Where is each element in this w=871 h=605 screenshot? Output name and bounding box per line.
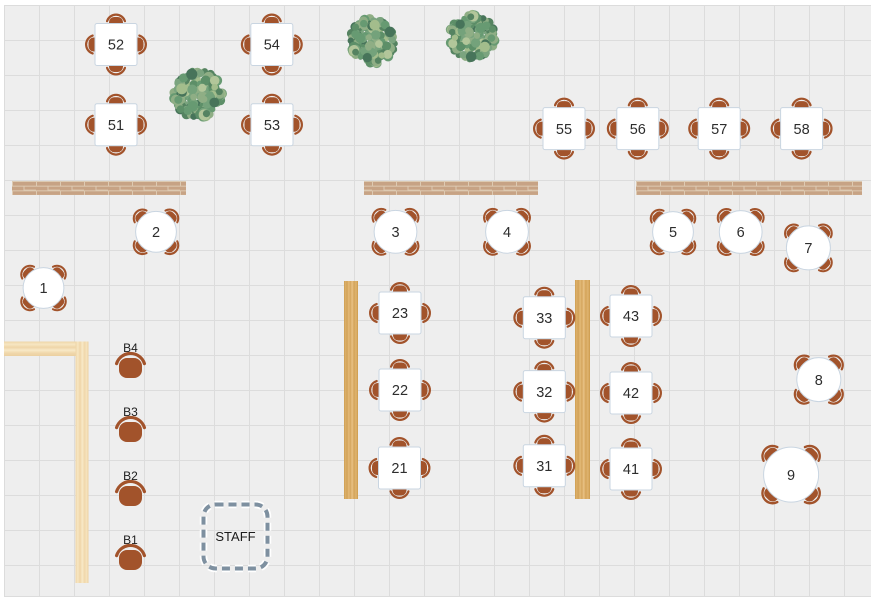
svg-text:54: 54: [264, 38, 280, 54]
svg-text:8: 8: [815, 373, 823, 389]
svg-text:58: 58: [794, 122, 810, 138]
svg-text:9: 9: [787, 468, 795, 484]
svg-text:43: 43: [623, 309, 639, 325]
svg-text:6: 6: [737, 225, 745, 241]
svg-text:21: 21: [391, 461, 407, 477]
svg-text:53: 53: [264, 118, 280, 134]
svg-text:52: 52: [108, 38, 124, 54]
svg-text:42: 42: [623, 386, 639, 402]
svg-text:4: 4: [503, 225, 511, 241]
svg-text:5: 5: [669, 225, 677, 241]
svg-text:23: 23: [392, 306, 408, 322]
svg-text:57: 57: [711, 122, 727, 138]
svg-text:7: 7: [804, 241, 812, 257]
svg-text:3: 3: [391, 225, 399, 241]
svg-text:2: 2: [152, 225, 160, 241]
svg-text:41: 41: [623, 462, 639, 478]
svg-text:22: 22: [392, 383, 408, 399]
svg-text:1: 1: [39, 281, 47, 297]
svg-text:33: 33: [536, 311, 552, 327]
svg-text:55: 55: [556, 122, 572, 138]
svg-text:STAFF: STAFF: [215, 529, 255, 544]
svg-text:32: 32: [536, 385, 552, 401]
svg-text:56: 56: [630, 122, 646, 138]
svg-text:51: 51: [108, 118, 124, 134]
svg-text:31: 31: [536, 459, 552, 475]
